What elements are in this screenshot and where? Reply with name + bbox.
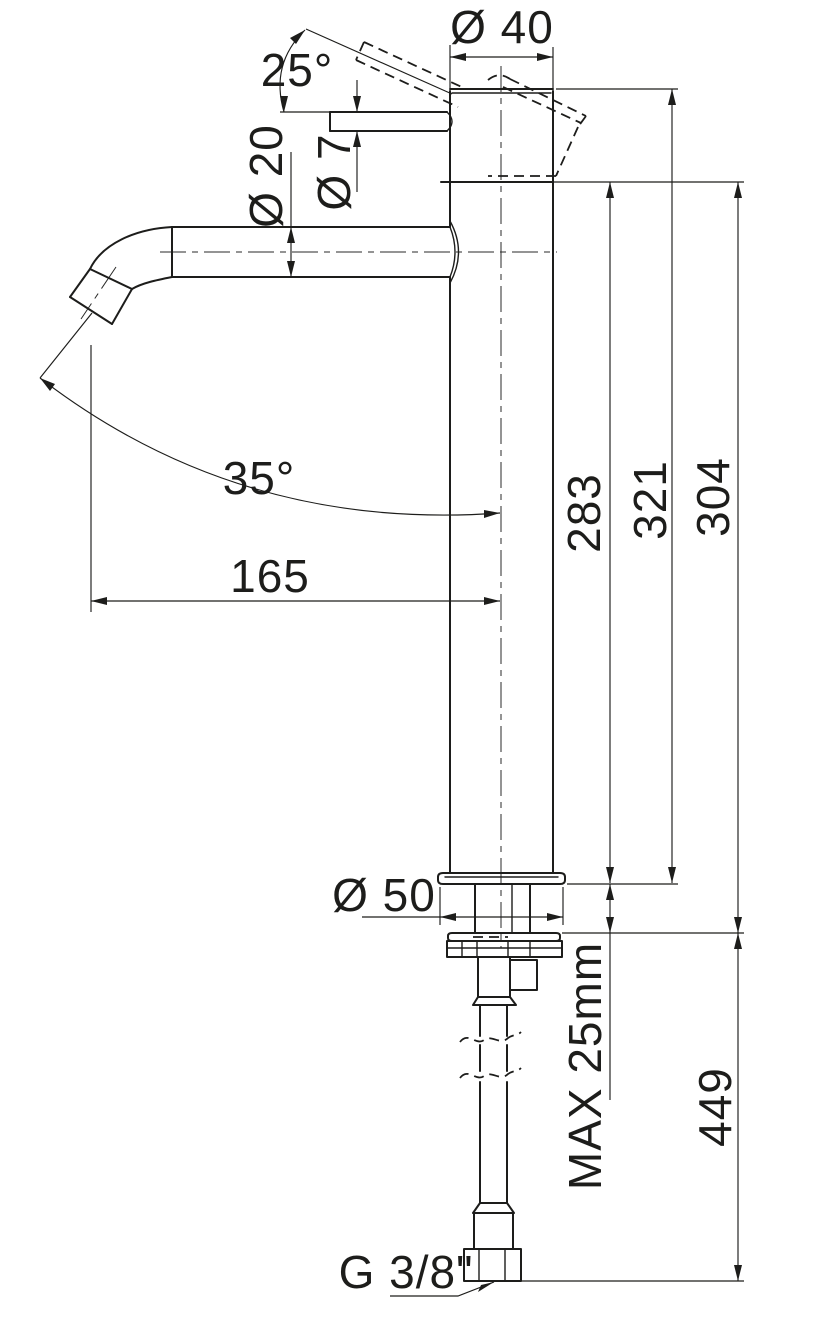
hose-segment-2 [480, 1045, 507, 1071]
handle-alternate-positions [356, 42, 586, 176]
label-angle-25: 25° [261, 44, 334, 96]
label-height-283: 283 [558, 473, 610, 553]
drawing-canvas: Ø 40 25° Ø 20 Ø 7 35° 165 283 321 304 Ø … [0, 0, 818, 1322]
hose-segment-1 [480, 1005, 507, 1036]
tilted-lever-top-edge [510, 79, 586, 116]
dimension-labels: Ø 40 25° Ø 20 Ø 7 35° 165 283 321 304 Ø … [223, 1, 741, 1298]
label-angle-35: 35° [223, 452, 296, 504]
arrow-35deg-left [40, 378, 55, 391]
arrow-25deg-top [290, 30, 305, 44]
label-height-449: 449 [689, 1067, 741, 1147]
aerator-face [70, 297, 112, 324]
raised-lever-bottom-edge [356, 60, 458, 107]
dimension-lines [40, 30, 738, 1296]
arrow-dia20-bottom [287, 261, 295, 277]
label-diameter-50: Ø 50 [332, 869, 436, 921]
label-diameter-7: Ø 7 [308, 133, 360, 210]
arrow-449-bottom [734, 1265, 742, 1281]
arrow-304-bottom [734, 917, 742, 933]
hose-end-collar [473, 1203, 514, 1213]
extension-lines [40, 29, 744, 1281]
label-max-25mm: MAX 25mm [559, 942, 611, 1190]
arrow-283-top [606, 182, 614, 198]
arrow-165-left [91, 597, 107, 605]
arrow-dia20-top [287, 227, 295, 243]
tilted-cone-top-arc [488, 75, 510, 80]
aerator-outer-edge [70, 269, 90, 297]
tube-body-intersection-inner [450, 227, 455, 277]
arrow-449-top [734, 933, 742, 949]
arrow-max25-bottom [606, 917, 614, 933]
ext-aerator-axis [40, 313, 92, 378]
hose-break-2 [460, 1068, 521, 1078]
label-height-304: 304 [687, 457, 739, 537]
spout-bend-outer [90, 227, 172, 269]
hose-segment-3 [480, 1082, 507, 1203]
label-diameter-40: Ø 40 [450, 1, 554, 53]
arrow-max25-top [606, 884, 614, 900]
mounting-washer [448, 933, 560, 941]
arrow-165-right [484, 597, 500, 605]
label-reach-165: 165 [230, 550, 310, 602]
mounting-nut [447, 941, 562, 957]
dimension-arrowheads [40, 30, 742, 1292]
hose-nut-facets [479, 1249, 505, 1281]
hose-collar-top [473, 997, 516, 1005]
arrow-35deg-right [484, 510, 500, 518]
label-diameter-20: Ø 20 [240, 124, 292, 228]
aerator-joint [90, 269, 132, 289]
hose-break-1 [460, 1032, 521, 1042]
hose-end-cylinder [474, 1213, 513, 1248]
mounting-nut-facets [462, 941, 530, 957]
spout-bend-inner [132, 277, 172, 289]
shank [478, 957, 510, 997]
arrow-dia40-right [537, 53, 553, 61]
arrow-dia7-top [353, 96, 361, 112]
arrow-321-top [668, 89, 676, 105]
label-thread-g38: G 3/8" [339, 1246, 474, 1298]
label-height-321: 321 [624, 460, 676, 540]
arrow-dia50-right [547, 913, 563, 921]
arrow-283-bottom [606, 867, 614, 883]
arrow-dia50-left [440, 913, 456, 921]
arrow-25deg-bottom [280, 96, 288, 112]
arrow-dia40-left [450, 53, 466, 61]
raised-lever-end-cap [356, 42, 364, 60]
arrow-321-bottom [668, 867, 676, 883]
shank-side-block [510, 960, 537, 990]
faucet-technical-drawing: Ø 40 25° Ø 20 Ø 7 35° 165 283 321 304 Ø … [0, 0, 818, 1322]
arrow-304-top [734, 182, 742, 198]
aerator-inner-edge [112, 289, 132, 324]
tilted-cone-right-edge [556, 127, 578, 176]
